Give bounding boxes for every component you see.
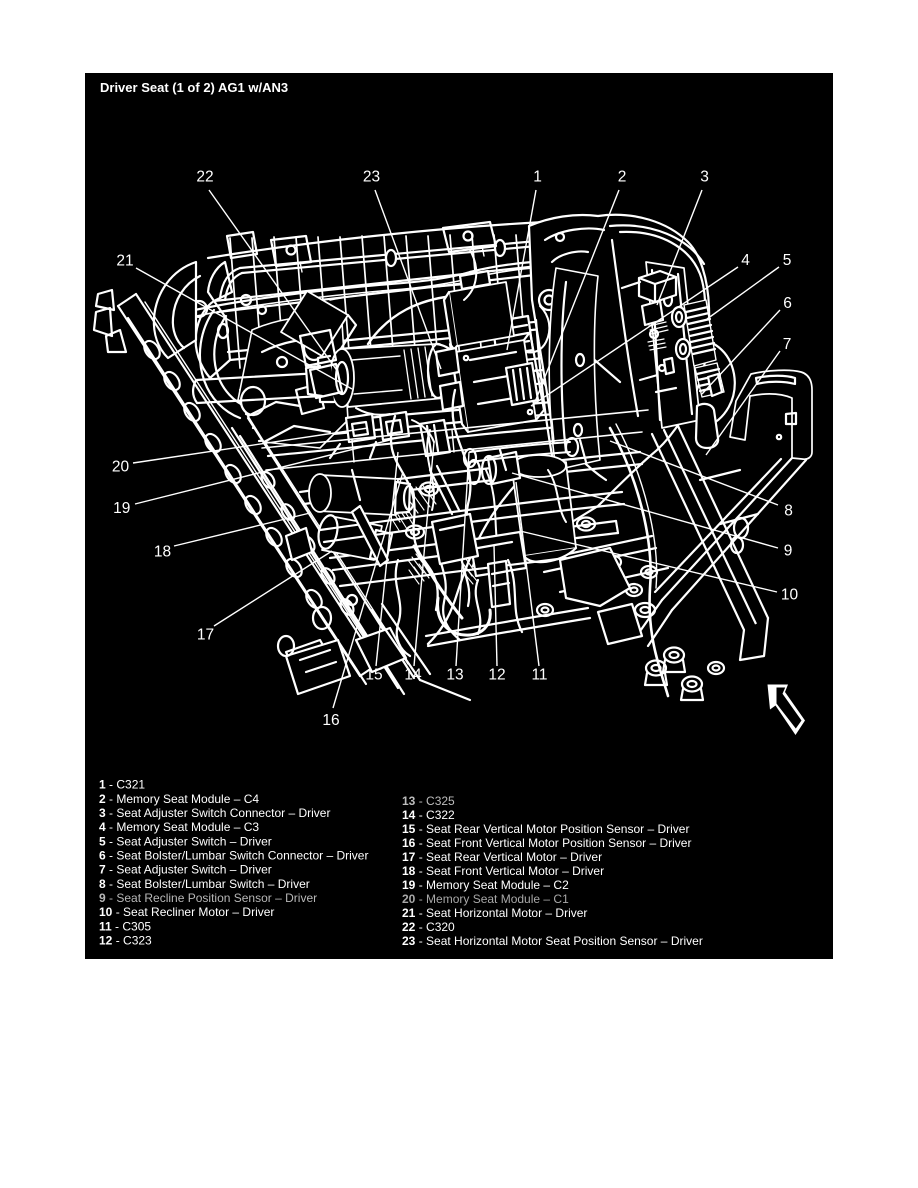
svg-text:22: 22 [196, 169, 213, 186]
svg-text:7 - Seat Adjuster Switch – Dri: 7 - Seat Adjuster Switch – Driver [99, 863, 272, 877]
svg-text:20 - Memory Seat Module – C1: 20 - Memory Seat Module – C1 [402, 892, 569, 906]
svg-text:12 - C323: 12 - C323 [99, 934, 152, 948]
svg-text:16 - Seat Front Vertical Motor: 16 - Seat Front Vertical Motor Position … [402, 836, 691, 850]
svg-text:7: 7 [783, 336, 792, 353]
svg-text:4 - Memory Seat Module – C3: 4 - Memory Seat Module – C3 [99, 820, 259, 834]
svg-text:1: 1 [533, 169, 542, 186]
svg-text:12: 12 [488, 667, 505, 684]
svg-text:2: 2 [618, 169, 627, 186]
svg-text:23 - Seat Horizontal Motor Sea: 23 - Seat Horizontal Motor Seat Position… [402, 934, 703, 948]
svg-text:6: 6 [783, 295, 792, 312]
svg-text:3: 3 [700, 169, 709, 186]
svg-text:13: 13 [446, 667, 463, 684]
svg-text:4: 4 [741, 252, 750, 269]
svg-text:13 - C325: 13 - C325 [402, 794, 455, 808]
svg-text:Driver Seat (1 of 2) AG1 w/AN3: Driver Seat (1 of 2) AG1 w/AN3 [100, 80, 288, 95]
svg-text:17: 17 [197, 627, 214, 644]
svg-text:16: 16 [322, 712, 339, 729]
svg-text:14 - C322: 14 - C322 [402, 808, 455, 822]
svg-text:18 - Seat Front Vertical Motor: 18 - Seat Front Vertical Motor – Driver [402, 864, 604, 878]
svg-text:11 - C305: 11 - C305 [99, 919, 151, 933]
svg-text:14: 14 [404, 667, 422, 684]
svg-text:2 - Memory Seat Module – C4: 2 - Memory Seat Module – C4 [99, 792, 259, 806]
svg-text:22 - C320: 22 - C320 [402, 920, 455, 934]
svg-text:17 - Seat Rear Vertical Motor: 17 - Seat Rear Vertical Motor – Driver [402, 850, 602, 864]
svg-text:18: 18 [154, 544, 171, 561]
svg-text:6 - Seat Bolster/Lumbar Switch: 6 - Seat Bolster/Lumbar Switch Connector… [99, 849, 368, 863]
svg-text:3 - Seat Adjuster Switch Conne: 3 - Seat Adjuster Switch Connector – Dri… [99, 806, 330, 820]
svg-text:11: 11 [531, 667, 547, 684]
svg-text:20: 20 [112, 459, 130, 476]
svg-text:9: 9 [784, 543, 793, 560]
svg-text:15 - Seat Rear Vertical Motor: 15 - Seat Rear Vertical Motor Position S… [402, 822, 689, 836]
svg-text:1 - C321: 1 - C321 [99, 778, 145, 792]
svg-text:10 - Seat Recliner Motor – Dri: 10 - Seat Recliner Motor – Driver [99, 905, 274, 919]
svg-text:8: 8 [784, 503, 793, 520]
svg-text:9 - Seat Recline Position Sens: 9 - Seat Recline Position Sensor – Drive… [99, 891, 317, 905]
svg-text:5: 5 [783, 252, 792, 269]
svg-text:23: 23 [363, 169, 380, 186]
svg-text:5 - Seat Adjuster Switch – Dri: 5 - Seat Adjuster Switch – Driver [99, 834, 272, 848]
svg-text:21 - Seat Horizontal Motor – D: 21 - Seat Horizontal Motor – Driver [402, 906, 587, 920]
svg-text:15: 15 [365, 667, 382, 684]
svg-text:21: 21 [116, 253, 133, 270]
svg-text:10: 10 [781, 587, 799, 604]
svg-text:8 - Seat Bolster/Lumbar Switch: 8 - Seat Bolster/Lumbar Switch – Driver [99, 877, 310, 891]
svg-text:19 - Memory Seat Module – C2: 19 - Memory Seat Module – C2 [402, 878, 569, 892]
svg-text:19: 19 [113, 500, 130, 517]
